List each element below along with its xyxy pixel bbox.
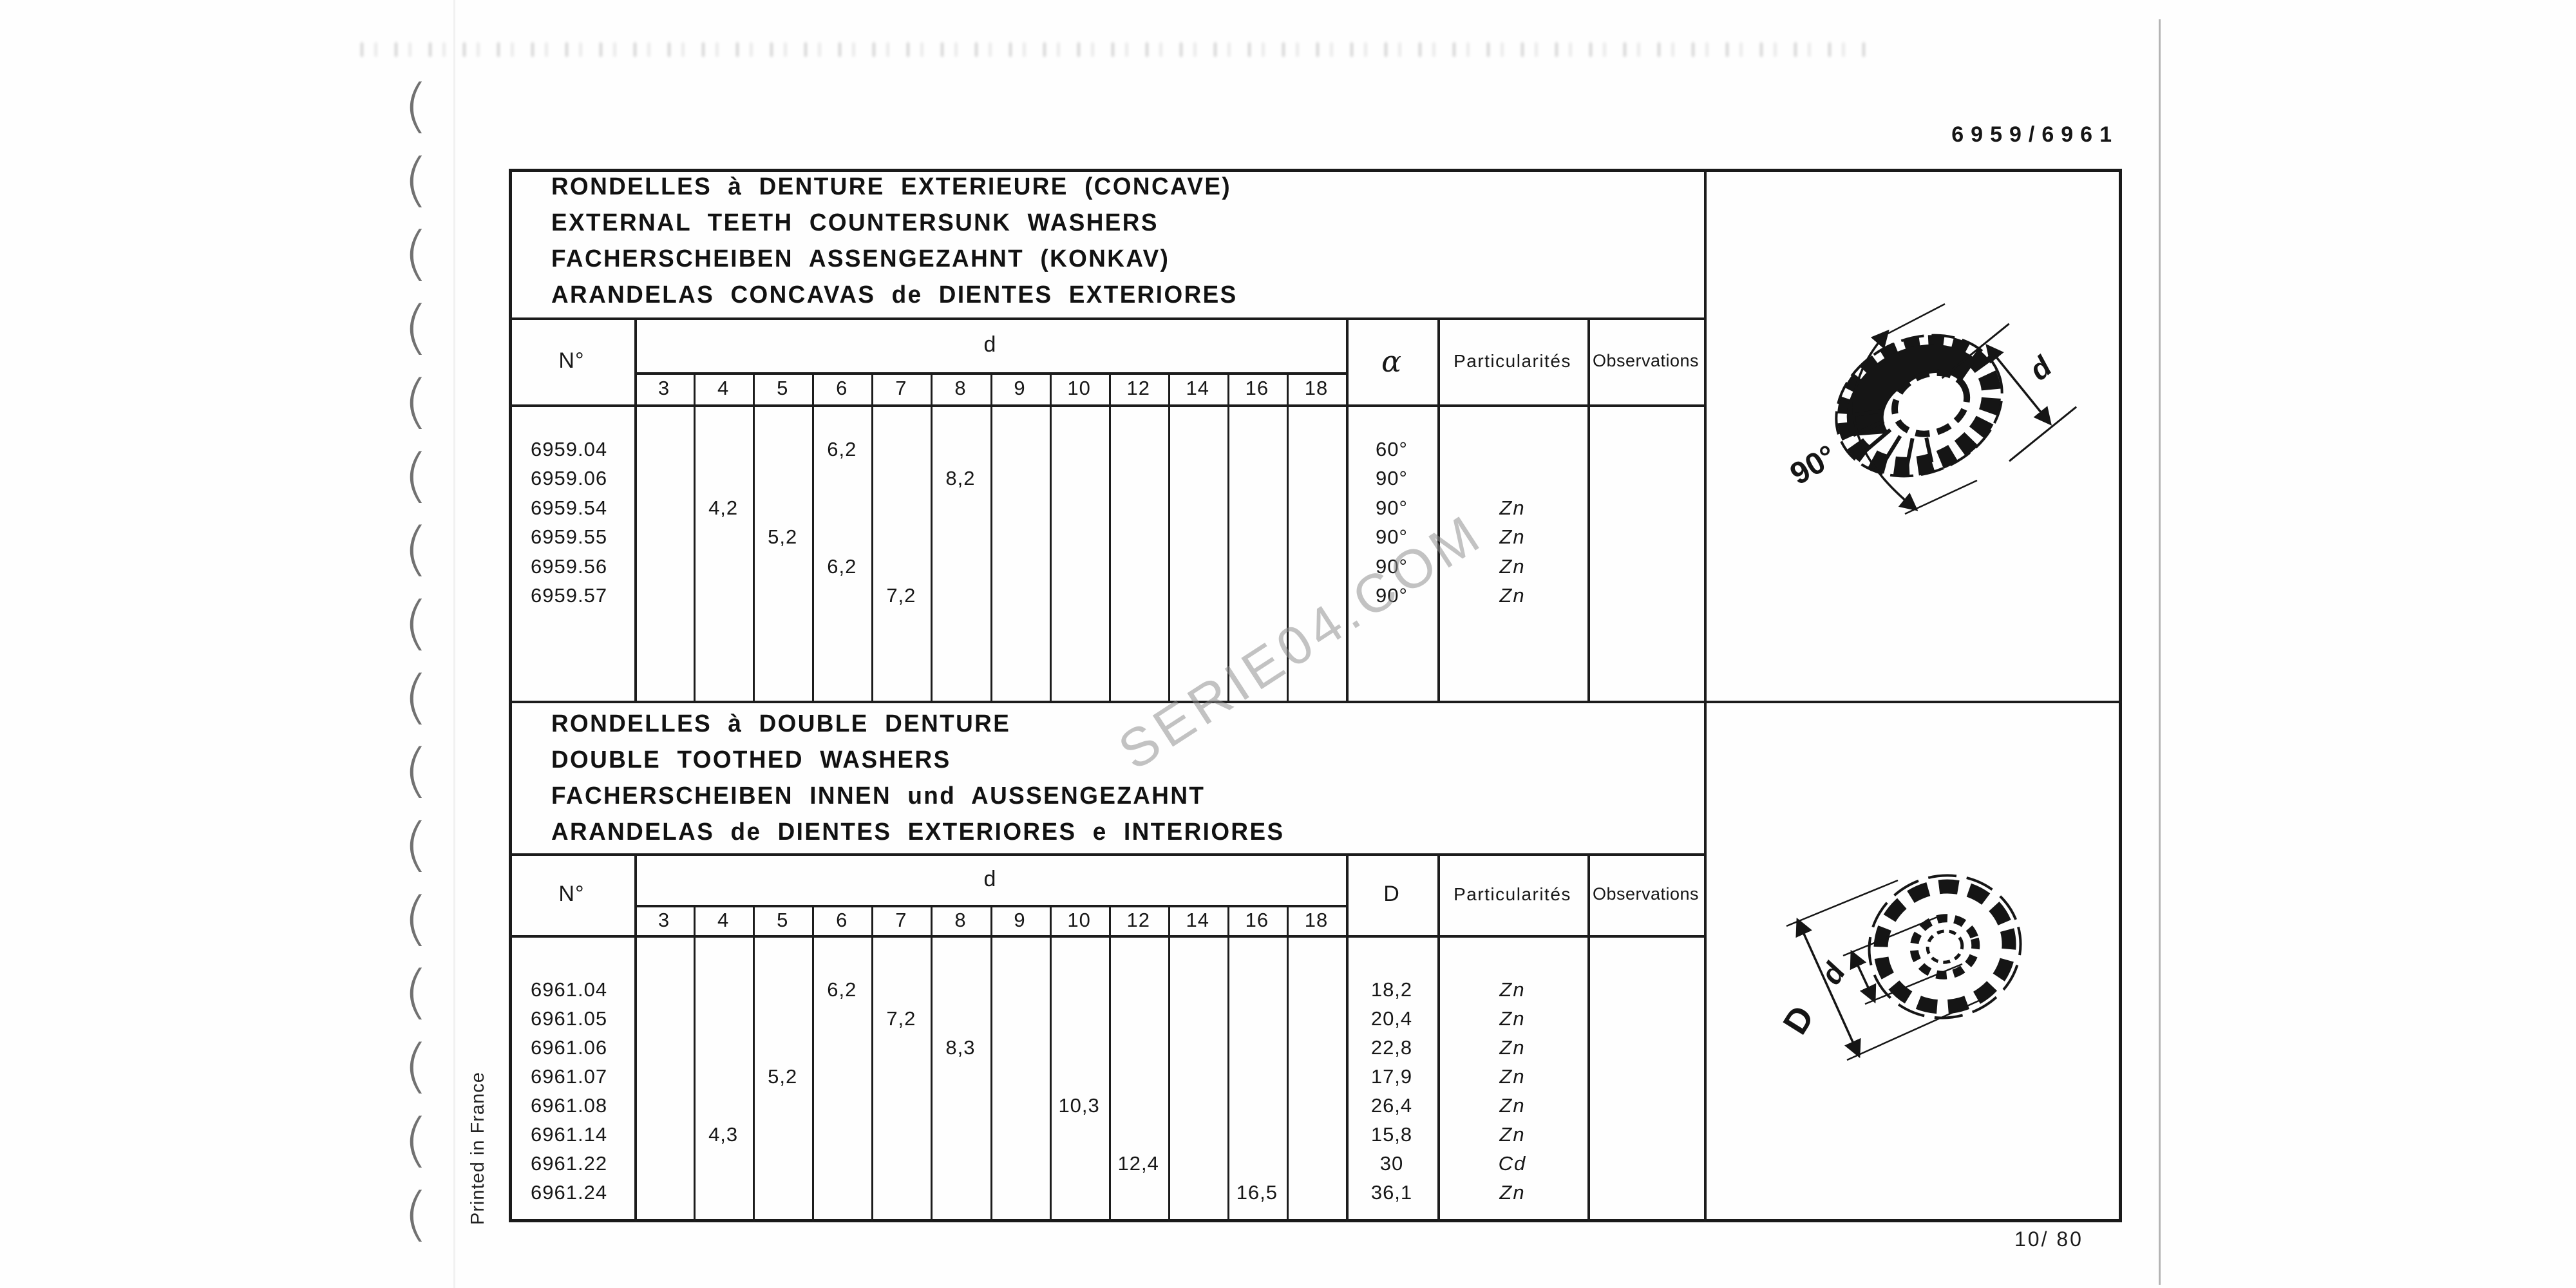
row-number: 6961.05: [531, 1004, 634, 1033]
illustration-separator-line: [1704, 169, 1707, 1222]
grid-line: [931, 905, 933, 1222]
col-header-no: N°: [509, 853, 634, 935]
binder-mark: (: [402, 368, 428, 435]
col-header-particularites: Particularités: [1437, 853, 1587, 935]
binder-mark: (: [402, 589, 428, 657]
printed-in-france: Printed in France: [468, 1072, 489, 1225]
scan-smudge: [361, 43, 1874, 57]
cell-particularite: Zn: [1437, 1091, 1587, 1120]
col-header-size-16: 16: [1227, 372, 1287, 404]
binder-mark: (: [402, 1106, 428, 1174]
row-number: 6961.08: [531, 1091, 634, 1120]
col-header-d: d: [634, 853, 1346, 905]
d-dimension-label: d: [1814, 956, 1851, 990]
col-header-size-6: 6: [812, 905, 871, 935]
binder-mark: (: [402, 515, 428, 583]
row-number: 6959.54: [531, 493, 634, 523]
grid-line: [871, 372, 873, 701]
washer-shape: [1853, 858, 2037, 1035]
grid-line: [1050, 905, 1052, 1222]
col-header-D: D: [1346, 853, 1437, 935]
cell-D-value: 18,2: [1346, 975, 1437, 1004]
page-fold-crease: [453, 0, 455, 1288]
cell-D-value: 26,4: [1346, 1091, 1437, 1120]
cell-particularite: Zn: [1437, 582, 1587, 611]
col-header-no: N°: [509, 317, 634, 404]
col-header-particularites: Particularités: [1437, 317, 1587, 404]
cell-d-value: 6,2: [807, 975, 876, 1004]
grid-line: [509, 404, 1704, 407]
grid-line: [871, 905, 873, 1222]
binder-mark: (: [402, 294, 428, 361]
cell-d-value: 12,4: [1104, 1149, 1173, 1178]
row-number: 6961.06: [531, 1033, 634, 1062]
col-header-angle: α: [1346, 317, 1437, 404]
binder-mark: (: [402, 958, 428, 1026]
cell-particularite: Zn: [1437, 975, 1587, 1004]
page-number: 10/ 80: [2014, 1227, 2083, 1251]
col-header-size-12: 12: [1109, 905, 1168, 935]
col-header-d: d: [634, 317, 1346, 372]
cell-d-value: 10,3: [1045, 1091, 1114, 1120]
table2-title-es: ARANDELAS de DIENTES EXTERIORES e INTERI…: [551, 814, 1285, 850]
row-number: 6961.24: [531, 1178, 634, 1207]
cell-particularite: Zn: [1437, 1178, 1587, 1207]
binder-mark: (: [402, 811, 428, 878]
col-header-size-14: 14: [1168, 905, 1227, 935]
col-header-size-4: 4: [694, 372, 753, 404]
col-header-size-18: 18: [1287, 905, 1346, 935]
cell-particularite: Zn: [1437, 1033, 1587, 1062]
col-header-size-10: 10: [1050, 905, 1109, 935]
angle-extension-line: [1905, 480, 1977, 514]
page-edge-line: [2159, 19, 2161, 1285]
angle-90-label: 90°: [1785, 439, 1842, 491]
binder-mark: (: [402, 220, 428, 287]
col-header-size-5: 5: [753, 372, 812, 404]
col-header-size-7: 7: [871, 372, 931, 404]
grid-line: [1168, 372, 1170, 701]
cell-d-value: 4,2: [688, 493, 758, 523]
col-header-observations: Observations: [1587, 853, 1704, 935]
grid-line: [694, 905, 696, 1222]
table2-title-de: FACHERSCHEIBEN INNEN und AUSSENGEZAHNT: [551, 778, 1285, 814]
grid-line: [1227, 905, 1229, 1222]
row-number: 6959.57: [531, 582, 634, 611]
cell-particularite: Cd: [1437, 1149, 1587, 1178]
catalog-reference: 6959/6961: [1906, 122, 2119, 147]
table1-title-es: ARANDELAS CONCAVAS de DIENTES EXTERIORES: [551, 277, 1238, 313]
cell-d-value: 16,5: [1222, 1178, 1292, 1207]
grid-line: [509, 935, 1704, 938]
col-header-size-3: 3: [634, 905, 694, 935]
row-number: 6959.06: [531, 464, 634, 494]
binder-mark: (: [402, 146, 428, 214]
row-number: 6961.14: [531, 1120, 634, 1149]
row-number: 6961.07: [531, 1062, 634, 1091]
col-header-size-6: 6: [812, 372, 871, 404]
grid-line: [694, 372, 696, 701]
angle-extension-line: [1878, 304, 1945, 339]
grid-line: [1287, 905, 1289, 1222]
col-header-size-16: 16: [1227, 905, 1287, 935]
row-number: 6961.04: [531, 975, 634, 1004]
cell-D-value: 36,1: [1346, 1178, 1437, 1207]
cell-D-value: 15,8: [1346, 1120, 1437, 1149]
grid-line: [1109, 372, 1111, 701]
col-header-size-14: 14: [1168, 372, 1227, 404]
table1-titles: RONDELLES à DENTURE EXTERIEURE (CONCAVE)…: [551, 169, 1259, 313]
cell-d-value: 5,2: [748, 523, 817, 553]
grid-line: [1050, 372, 1052, 701]
col-header-size-12: 12: [1109, 372, 1168, 404]
row-number: 6959.56: [531, 552, 634, 582]
cell-angle-value: 90°: [1346, 464, 1437, 494]
grid-line: [931, 372, 933, 701]
binder-mark: (: [402, 72, 428, 140]
D-extension-line: [1847, 999, 1982, 1060]
cell-d-value: 5,2: [748, 1062, 817, 1091]
cell-d-value: 7,2: [866, 582, 936, 611]
cell-d-value: 8,3: [925, 1033, 995, 1062]
col-header-size-5: 5: [753, 905, 812, 935]
catalog-page: 6959/6961 RONDELLES à DENTURE EXTERIEURE…: [0, 0, 2576, 1288]
col-header-size-18: 18: [1287, 372, 1346, 404]
grid-line: [990, 905, 992, 1222]
cell-d-value: 6,2: [807, 435, 876, 464]
block-divider-line: [509, 701, 2122, 703]
cell-d-value: 4,3: [688, 1120, 758, 1149]
binder-mark: (: [402, 1032, 428, 1100]
d-extension-line: [1843, 916, 1940, 956]
washer-3d-shape: [1814, 310, 2025, 502]
table1-title-de: FACHERSCHEIBEN ASSENGEZAHNT (KONKAV): [551, 241, 1238, 277]
cell-D-value: 17,9: [1346, 1062, 1437, 1091]
concave-washer-illustration: 90° d: [1726, 256, 2112, 591]
cell-D-value: 20,4: [1346, 1004, 1437, 1033]
cell-particularite: Zn: [1437, 1062, 1587, 1091]
binder-mark: (: [402, 1180, 428, 1248]
row-number: 6959.55: [531, 523, 634, 553]
double-toothed-washer-illustration: D d: [1726, 824, 2112, 1185]
col-header-size-8: 8: [931, 905, 990, 935]
cell-D-value: 30: [1346, 1149, 1437, 1178]
binder-mark: (: [402, 663, 428, 731]
d-dimension-label: d: [2023, 349, 2058, 387]
table1-title-fr: RONDELLES à DENTURE EXTERIEURE (CONCAVE): [551, 169, 1238, 205]
cell-d-value: 8,2: [925, 464, 995, 494]
cell-d-value: 6,2: [807, 552, 876, 582]
cell-angle-value: 60°: [1346, 435, 1437, 464]
col-header-size-10: 10: [1050, 372, 1109, 404]
col-header-size-4: 4: [694, 905, 753, 935]
col-header-size-9: 9: [990, 905, 1050, 935]
cell-d-value: 7,2: [866, 1004, 936, 1033]
cell-D-value: 22,8: [1346, 1033, 1437, 1062]
col-header-size-8: 8: [931, 372, 990, 404]
cell-particularite: Zn: [1437, 1004, 1587, 1033]
binder-mark: (: [402, 737, 428, 804]
D-extension-line: [1786, 880, 1898, 926]
col-header-observations: Observations: [1587, 317, 1704, 404]
cell-particularite: Zn: [1437, 1120, 1587, 1149]
grid-line: [990, 372, 992, 701]
col-header-size-3: 3: [634, 372, 694, 404]
D-dimension-label: D: [1776, 999, 1822, 1041]
table1-title-en: EXTERNAL TEETH COUNTERSUNK WASHERS: [551, 205, 1238, 241]
cell-angle-value: 90°: [1346, 493, 1437, 523]
binder-mark: (: [402, 442, 428, 509]
col-header-size-9: 9: [990, 372, 1050, 404]
col-header-size-7: 7: [871, 905, 931, 935]
binder-mark: (: [402, 885, 428, 952]
row-number: 6959.04: [531, 435, 634, 464]
row-number: 6961.22: [531, 1149, 634, 1178]
